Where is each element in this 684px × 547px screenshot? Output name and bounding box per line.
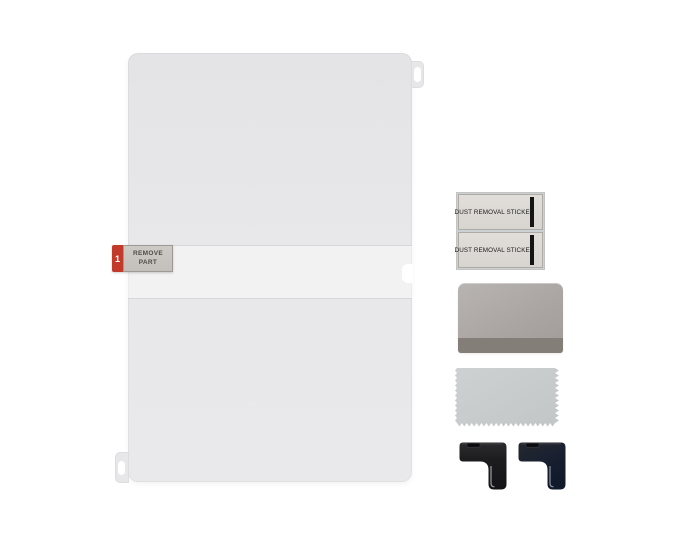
remove-part-sticker: 1 REMOVE PART [112,245,173,272]
guide-notch [467,443,480,447]
dust-sticker-label: DUST REMOVAL STICKER [461,195,528,229]
corner-guide-left [458,441,508,491]
cloth-shape [455,368,559,427]
dust-sticker-label: DUST REMOVAL STICKER [461,233,528,267]
edge-notch [402,264,413,283]
product-photo-screen-protector-kit: 1 REMOVE PART DUST REMOVAL STICKER DUST … [0,0,684,547]
cleaning-cloth [455,366,565,430]
squeegee-card [458,283,563,353]
dust-removal-sticker: DUST REMOVAL STICKER [458,232,543,268]
step-number-badge: 1 [112,245,123,272]
sticker-grip-bar [530,197,534,227]
dust-removal-sticker-block: DUST REMOVAL STICKER DUST REMOVAL STICKE… [456,192,545,270]
pull-tab-bottom-left [115,452,129,483]
remove-part-label: REMOVE PART [123,245,173,272]
squeegee-rubber-edge [458,338,563,353]
corner-guide-right [517,441,567,491]
guide-body [519,443,566,490]
guide-body [460,443,507,490]
pull-tab-slot [414,67,421,82]
pull-tab-top-right [411,61,424,88]
guide-notch [526,443,539,447]
sticker-grip-bar [530,235,534,265]
pull-tab-slot [118,461,125,475]
dust-removal-sticker: DUST REMOVAL STICKER [458,194,543,230]
screen-protector-film: 1 REMOVE PART [128,53,412,482]
